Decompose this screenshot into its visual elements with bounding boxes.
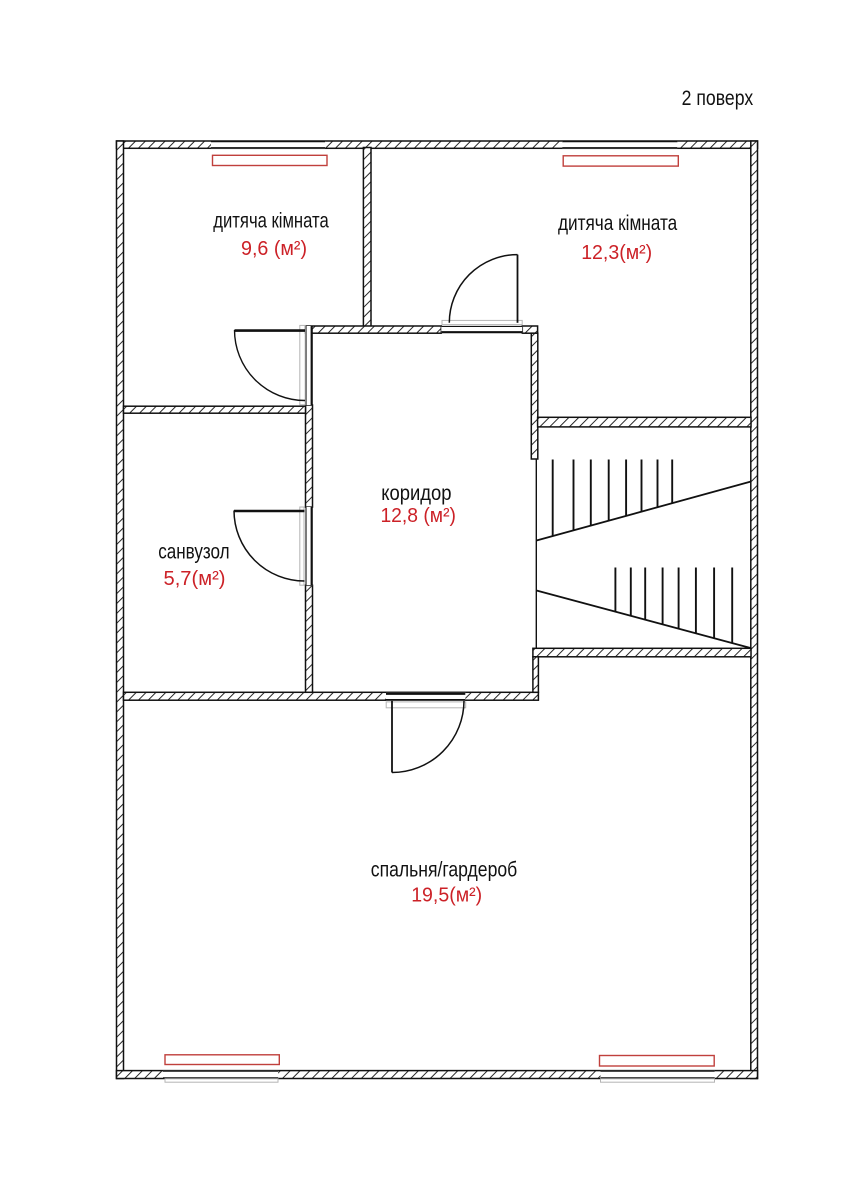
svg-text:санвузол: санвузол	[158, 540, 229, 564]
svg-text:19,5(м²): 19,5(м²)	[411, 885, 482, 907]
svg-text:спальня/гардероб: спальня/гардероб	[371, 858, 517, 882]
svg-text:дитяча кімната: дитяча кімната	[213, 209, 328, 233]
svg-text:9,6 (м²): 9,6 (м²)	[241, 238, 307, 260]
svg-text:12,8 (м²): 12,8 (м²)	[380, 505, 456, 527]
svg-text:коридор: коридор	[381, 481, 451, 505]
svg-text:дитяча кімната: дитяча кімната	[558, 211, 677, 235]
svg-text:5,7(м²): 5,7(м²)	[164, 568, 226, 590]
svg-text:2 поверх: 2 поверх	[682, 86, 754, 110]
svg-text:12,3(м²): 12,3(м²)	[581, 242, 652, 264]
